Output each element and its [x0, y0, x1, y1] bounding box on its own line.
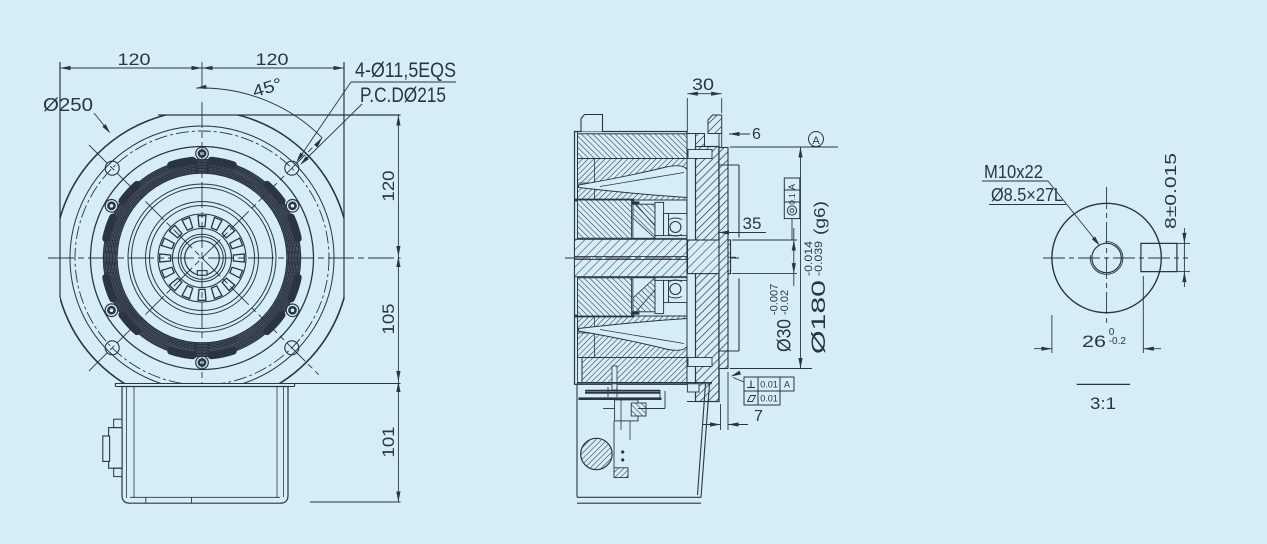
svg-text:A: A	[812, 135, 820, 147]
svg-text:Ø8.5×27L: Ø8.5×27L	[991, 185, 1063, 205]
svg-text:Ø180: Ø180	[809, 280, 830, 354]
svg-text:3:1: 3:1	[1090, 394, 1116, 413]
svg-text:(g6): (g6)	[812, 201, 829, 235]
svg-text:101: 101	[379, 427, 398, 458]
svg-text:0.01: 0.01	[760, 380, 778, 390]
svg-text:Ø250: Ø250	[43, 95, 93, 115]
svg-text:P.C.DØ215: P.C.DØ215	[360, 84, 446, 107]
svg-text:-0.2: -0.2	[1109, 336, 1127, 347]
svg-text:120: 120	[256, 50, 289, 69]
svg-text:-0.039: -0.039	[813, 241, 825, 276]
svg-text:8±0.015: 8±0.015	[1163, 153, 1180, 229]
svg-text:30: 30	[692, 75, 714, 94]
svg-text:0.01: 0.01	[760, 394, 778, 404]
svg-text:-0.02: -0.02	[779, 290, 791, 315]
svg-text:A: A	[784, 380, 790, 390]
svg-text:105: 105	[379, 304, 398, 335]
svg-text:0.1: 0.1	[788, 193, 797, 205]
svg-text:6: 6	[752, 126, 761, 143]
svg-text:Ø30: Ø30	[775, 319, 796, 352]
svg-text:A: A	[787, 184, 797, 190]
svg-text:120: 120	[379, 171, 398, 202]
svg-text:M10x22: M10x22	[984, 162, 1043, 182]
svg-text:4-Ø11,5EQS: 4-Ø11,5EQS	[355, 59, 456, 82]
svg-text:120: 120	[118, 50, 151, 69]
svg-text:35: 35	[743, 214, 762, 233]
svg-text:7: 7	[754, 408, 763, 425]
svg-text:26: 26	[1082, 332, 1106, 351]
